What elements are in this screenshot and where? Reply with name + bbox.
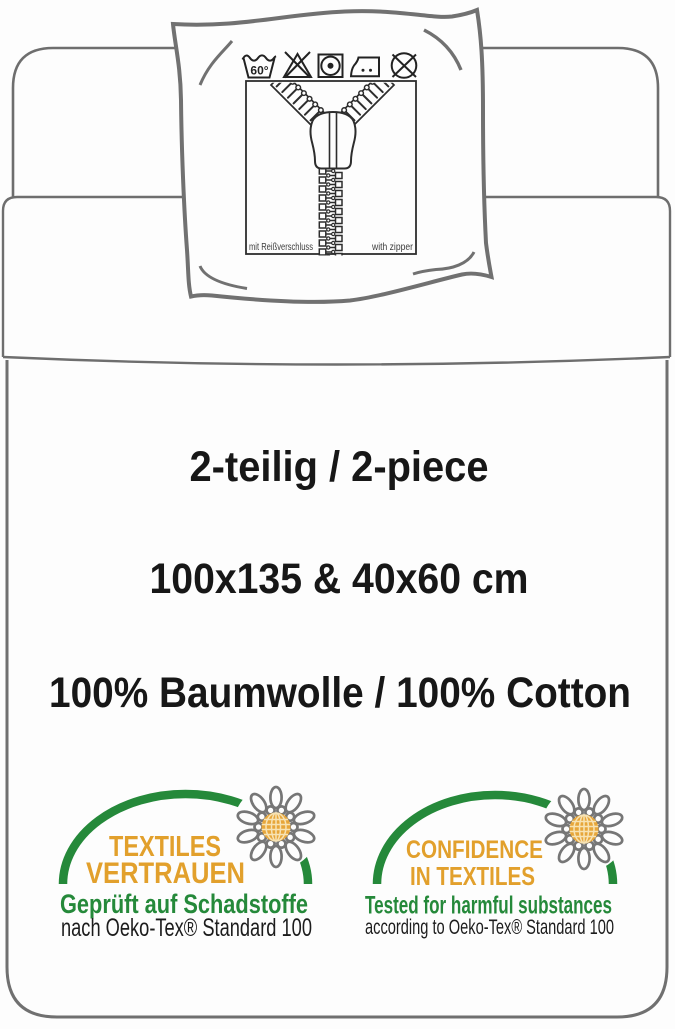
svg-text:60°: 60° (250, 64, 268, 78)
svg-text:nach Oeko-Tex® Standard 100: nach Oeko-Tex® Standard 100 (61, 914, 312, 942)
svg-text:IN TEXTILES: IN TEXTILES (410, 861, 535, 891)
svg-text:mit Reißverschluss: mit Reißverschluss (249, 242, 313, 253)
svg-text:2-teilig / 2-piece: 2-teilig / 2-piece (190, 443, 489, 491)
svg-text:100% Baumwolle / 100% Cotton: 100% Baumwolle / 100% Cotton (49, 669, 631, 717)
svg-text:with zipper: with zipper (371, 242, 413, 253)
svg-text:VERTRAUEN: VERTRAUEN (86, 857, 245, 890)
svg-text:100x135 & 40x60 cm: 100x135 & 40x60 cm (150, 555, 529, 603)
svg-text:CONFIDENCE: CONFIDENCE (406, 836, 543, 864)
svg-text:according to Oeko-Tex® Standar: according to Oeko-Tex® Standard 100 (365, 915, 614, 939)
